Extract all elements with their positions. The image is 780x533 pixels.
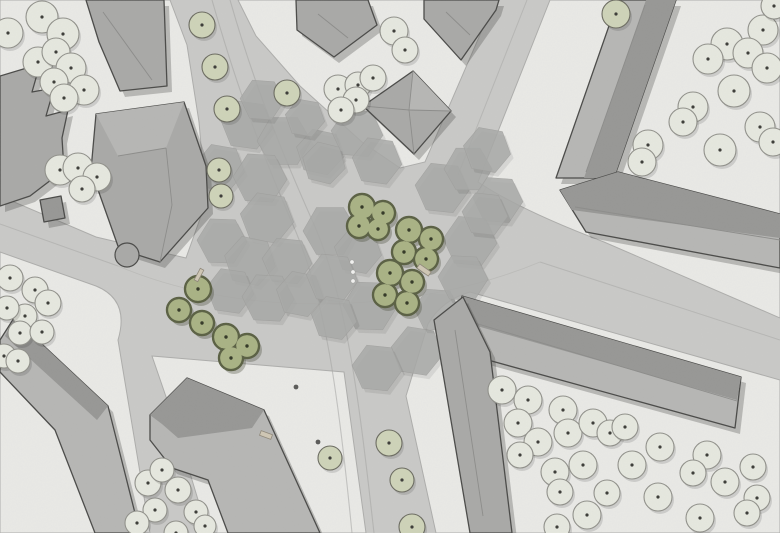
site-plan-svg [0, 0, 780, 533]
site-plan-map [0, 0, 780, 533]
paper-grain-overlay [0, 0, 780, 533]
